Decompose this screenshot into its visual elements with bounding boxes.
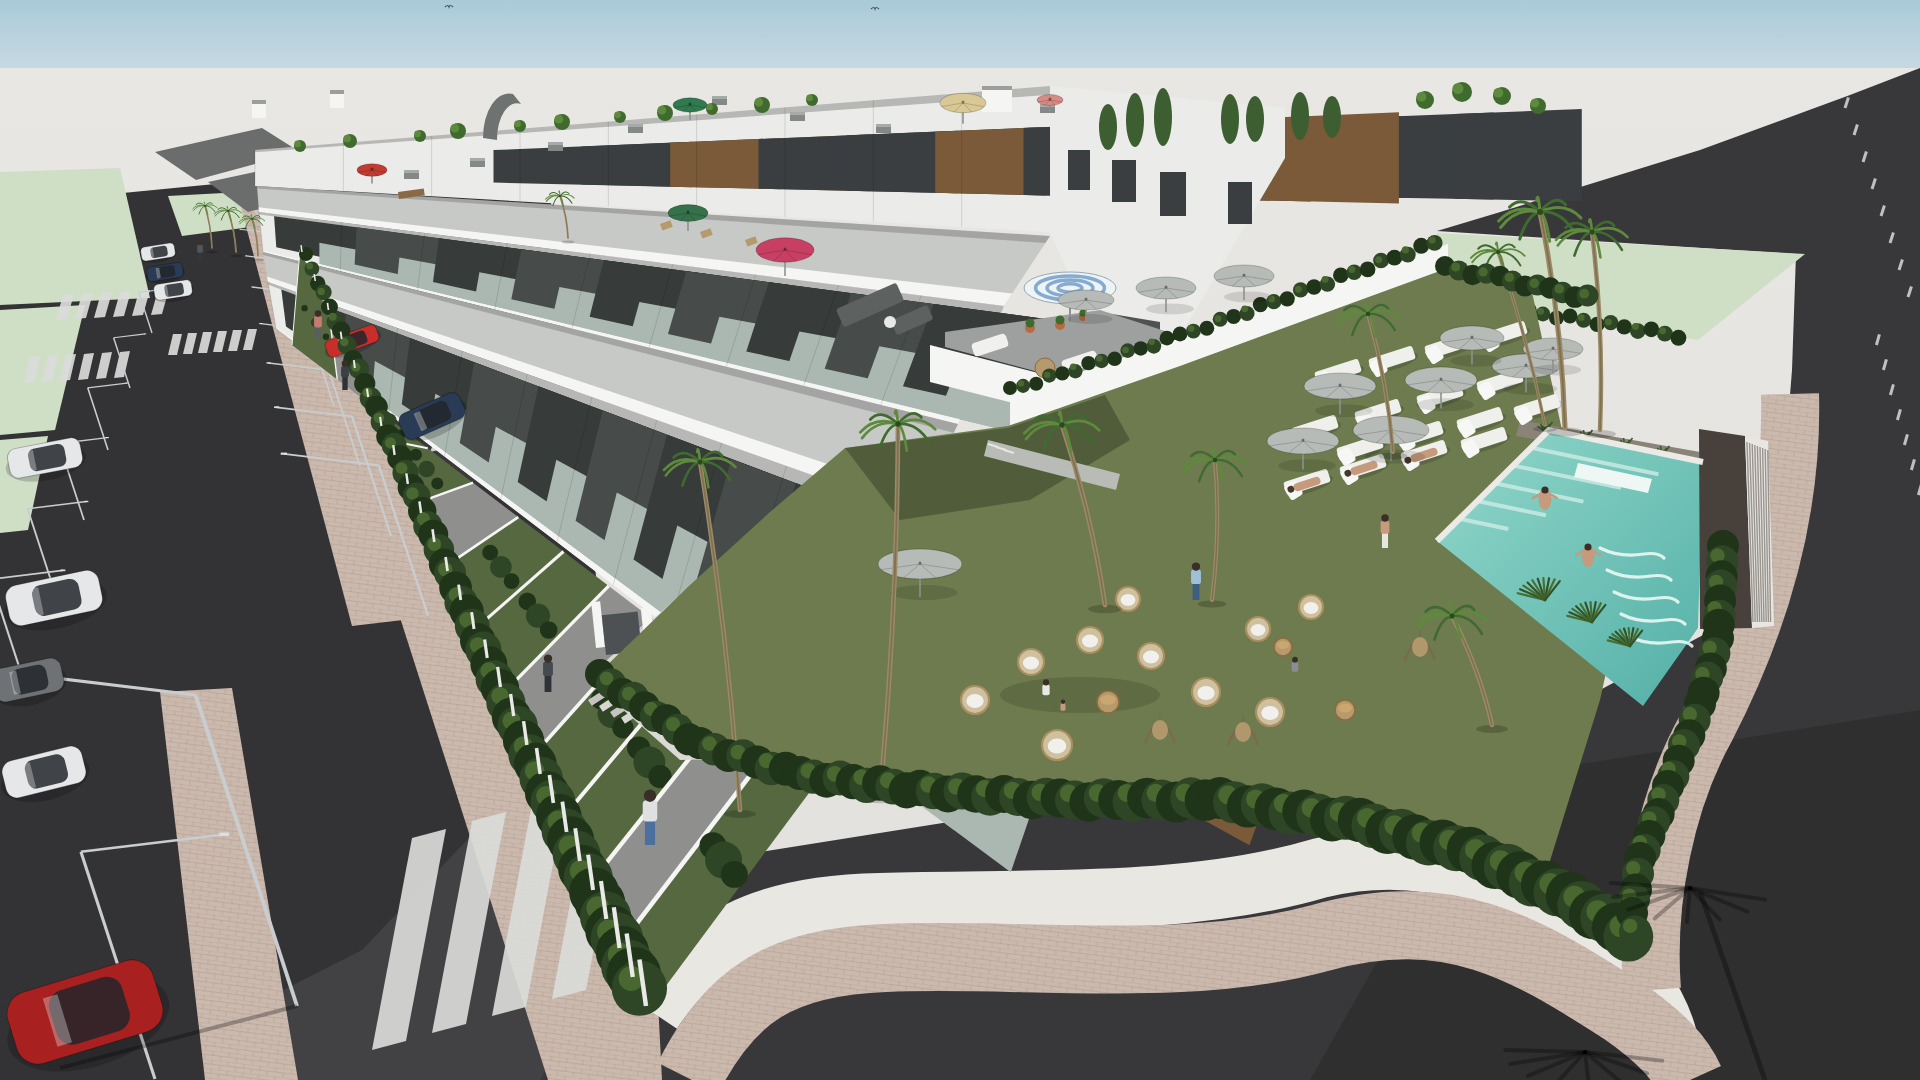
east-verge-hedge-hi bbox=[1537, 308, 1544, 315]
right-hedge-hi bbox=[1623, 919, 1637, 933]
roof-plant-hi bbox=[450, 124, 459, 133]
wall-top-hedge-hi bbox=[1429, 237, 1436, 244]
parasol-knob bbox=[1302, 439, 1305, 442]
roof-plant-hi bbox=[554, 115, 563, 124]
garden-visitor bbox=[1060, 700, 1065, 711]
wicker-egg-chair bbox=[1246, 617, 1270, 641]
sky bbox=[0, 0, 1920, 68]
palm-crown bbox=[1366, 312, 1371, 317]
lamp-head bbox=[251, 287, 254, 288]
egg-chair-cushion bbox=[1023, 657, 1039, 670]
wall-top-hedge bbox=[1055, 366, 1069, 380]
person-legs bbox=[198, 252, 202, 262]
chimney-cap bbox=[330, 90, 344, 94]
person-legs bbox=[645, 819, 655, 845]
lamp-head bbox=[144, 334, 146, 335]
wall-top-hedge bbox=[1081, 356, 1095, 370]
person-torso bbox=[341, 366, 349, 377]
wicker-egg-chair bbox=[1299, 595, 1323, 619]
wall-top-hedge-hi bbox=[1241, 305, 1248, 312]
palm-crown bbox=[895, 421, 900, 426]
parasol-knob bbox=[1243, 274, 1246, 277]
pool-back-hedge-hi bbox=[1505, 273, 1514, 282]
wall-top-hedge-hi bbox=[1188, 325, 1195, 332]
parasol-shadow bbox=[1533, 364, 1581, 375]
garden-visitor bbox=[1292, 657, 1299, 672]
end-block-window bbox=[1228, 182, 1252, 224]
east-verge-hedge bbox=[1590, 317, 1605, 332]
roof-cypress bbox=[1323, 96, 1341, 138]
ac-unit-top bbox=[876, 124, 891, 127]
ac-unit-top bbox=[628, 124, 643, 127]
roof-plant-hi bbox=[1416, 92, 1426, 102]
garden-hedge-blob bbox=[301, 305, 307, 311]
wicker-egg-chair bbox=[1192, 678, 1220, 706]
parasol-knob bbox=[1471, 336, 1474, 339]
lamp-head bbox=[239, 229, 241, 230]
east-verge-hedge-hi bbox=[1605, 319, 1612, 326]
wall-top-hedge-hi bbox=[1122, 347, 1129, 354]
lamp-head bbox=[219, 833, 229, 836]
roof-cypress bbox=[1221, 94, 1239, 144]
wall-top-hedge bbox=[1413, 238, 1429, 254]
east-verge-hedge bbox=[1576, 313, 1591, 328]
roof-cypress bbox=[1126, 93, 1144, 147]
pool-back-hedge-hi bbox=[1579, 289, 1589, 299]
east-verge-hedge bbox=[1617, 319, 1632, 334]
east-verge-hedge bbox=[1563, 309, 1578, 324]
roof-plant-hi bbox=[514, 121, 521, 128]
street-hedge-hi bbox=[318, 288, 325, 295]
person-legs bbox=[315, 326, 320, 340]
person-head bbox=[1192, 562, 1200, 570]
lamp-head bbox=[84, 501, 88, 502]
person-torso bbox=[1191, 570, 1201, 584]
person-legs bbox=[1382, 532, 1388, 548]
rattan-table-top bbox=[1338, 704, 1352, 713]
wall-top-hedge-hi bbox=[1215, 315, 1222, 322]
wall-top-hedge-hi bbox=[1375, 256, 1382, 263]
wicker-egg-chair bbox=[1042, 730, 1072, 760]
wall-top-hedge bbox=[1003, 381, 1017, 395]
person-torso bbox=[643, 800, 658, 821]
east-verge-hedge bbox=[1671, 330, 1687, 346]
person-head bbox=[1292, 657, 1298, 663]
ac-unit-top bbox=[470, 158, 485, 161]
person-torso bbox=[1381, 521, 1390, 534]
roof-plant-hi bbox=[294, 141, 301, 148]
east-verge-hedge bbox=[1644, 322, 1660, 338]
lamp-head bbox=[61, 569, 66, 571]
parasol-shadow bbox=[1450, 355, 1501, 367]
rendering-canvas bbox=[0, 0, 1920, 1080]
wall-top-hedge bbox=[1173, 327, 1188, 342]
wall-top-hedge bbox=[1094, 354, 1108, 368]
lamp-head bbox=[126, 383, 129, 384]
palm-crown bbox=[1449, 613, 1454, 618]
pot-plant bbox=[1026, 319, 1035, 328]
garden-hedge-blob bbox=[418, 461, 435, 478]
wall-top-hedge bbox=[1306, 279, 1321, 294]
parasol-knob bbox=[784, 248, 787, 251]
wall-top-hedge-hi bbox=[1402, 246, 1409, 253]
person-torso bbox=[1060, 703, 1065, 711]
egg-chair-cushion bbox=[1048, 739, 1067, 754]
swing-seat bbox=[1152, 720, 1168, 740]
wall-top-hedge-hi bbox=[1295, 286, 1302, 293]
roof-plant-hi bbox=[754, 98, 763, 107]
palm-shadow bbox=[230, 254, 242, 257]
egg-chair-cushion bbox=[1121, 594, 1136, 606]
swimmer-head bbox=[1584, 543, 1591, 550]
end-block-window bbox=[1112, 160, 1136, 202]
person-head bbox=[315, 310, 322, 317]
garden-hedge-blob bbox=[323, 334, 329, 340]
swing-seat bbox=[1412, 637, 1428, 657]
palm-frond-shadow bbox=[1505, 1050, 1585, 1052]
palm-shadow bbox=[562, 240, 575, 243]
garden-hedge-blob bbox=[431, 477, 443, 489]
palm-crown bbox=[697, 459, 702, 464]
right-hedge-hi bbox=[1626, 861, 1640, 875]
person-legs bbox=[342, 376, 347, 390]
pot-plant bbox=[1056, 316, 1065, 325]
parasol-shadow bbox=[1278, 459, 1336, 472]
person-head bbox=[1381, 514, 1388, 521]
pool-back-hedge-hi bbox=[1554, 284, 1564, 294]
wall-top-hedge bbox=[1029, 377, 1043, 391]
parasol-knob bbox=[1339, 384, 1342, 387]
wall-top-hedge bbox=[1160, 331, 1175, 346]
street-hedge bbox=[321, 299, 338, 316]
palm-shadow bbox=[207, 251, 218, 254]
wicker-egg-chair bbox=[1018, 649, 1044, 675]
street-hedge bbox=[305, 261, 320, 276]
wall-top-hedge bbox=[1133, 341, 1148, 356]
wall-top-hedge bbox=[1360, 262, 1376, 278]
palm-crown bbox=[204, 205, 206, 207]
palm-crown bbox=[251, 218, 253, 220]
palm-crown bbox=[559, 195, 561, 197]
person-torso bbox=[1292, 662, 1299, 672]
wall-top-hedge bbox=[1280, 291, 1295, 306]
person-torso bbox=[314, 316, 322, 327]
parasol-shadow bbox=[1416, 398, 1474, 411]
roof-cypress bbox=[1099, 104, 1117, 150]
palm-crown bbox=[1059, 422, 1064, 427]
wall-top-hedge bbox=[1427, 235, 1443, 251]
pool-back-hedge-hi bbox=[1530, 279, 1540, 289]
person-head bbox=[1061, 700, 1065, 704]
architectural-aerial-rendering bbox=[0, 0, 1920, 1080]
parasol-shadow bbox=[1503, 383, 1557, 395]
terrace-table bbox=[884, 316, 896, 328]
parasol-shadow bbox=[890, 585, 957, 600]
person-legs bbox=[545, 675, 552, 692]
chimney-cap bbox=[252, 100, 266, 104]
roof-plant-hi bbox=[806, 95, 813, 102]
parasol-shadow bbox=[1146, 303, 1194, 314]
egg-chair-cushion bbox=[1082, 635, 1098, 648]
ac-unit-top bbox=[548, 142, 563, 145]
parasol-knob bbox=[1085, 298, 1088, 301]
roof-plant-hi bbox=[1493, 88, 1503, 98]
wicker-egg-chair bbox=[1138, 643, 1164, 669]
person-head bbox=[342, 360, 349, 367]
egg-chair-cushion bbox=[1261, 706, 1278, 720]
wicker-egg-chair bbox=[1256, 698, 1284, 726]
wall-top-hedge bbox=[1016, 379, 1030, 393]
garden-hedge-blob bbox=[721, 861, 748, 888]
parasol-knob bbox=[689, 103, 692, 106]
roof-plant-hi bbox=[614, 112, 621, 119]
roof-plant-hi bbox=[343, 135, 351, 143]
street-hedge-hi bbox=[351, 363, 360, 372]
street-hedge-hi bbox=[396, 462, 408, 474]
person-head bbox=[1043, 679, 1049, 685]
roof-plant-hi bbox=[1530, 99, 1539, 108]
garden-hedge-blob bbox=[540, 621, 558, 639]
wall-top-hedge-hi bbox=[1096, 355, 1102, 361]
parasol-knob bbox=[962, 101, 965, 104]
parasol-shadow bbox=[1315, 404, 1373, 417]
wall-top-hedge-hi bbox=[1148, 338, 1155, 345]
person-head bbox=[198, 240, 203, 245]
palm-shadow bbox=[1533, 426, 1557, 432]
wall-top-hedge bbox=[1107, 352, 1121, 366]
east-verge-hedge bbox=[1657, 326, 1673, 342]
right-hedge bbox=[1619, 916, 1651, 948]
wall-top-hedge-hi bbox=[1018, 380, 1024, 386]
wicker-egg-chair bbox=[961, 686, 989, 714]
ac-unit-top bbox=[712, 96, 727, 99]
window bbox=[1455, 109, 1582, 201]
roof-plant-hi bbox=[1453, 83, 1464, 94]
person-legs bbox=[1193, 583, 1200, 600]
roof-plant-hi bbox=[414, 131, 421, 138]
street-hedge-hi bbox=[306, 263, 313, 270]
palm-crown bbox=[1496, 250, 1500, 254]
lamp-head bbox=[259, 323, 262, 324]
wall-top-hedge-hi bbox=[1348, 266, 1355, 273]
east-verge-hedge-hi bbox=[1659, 327, 1666, 334]
palm-crown bbox=[1537, 209, 1543, 215]
person-torso bbox=[1042, 684, 1049, 695]
wall-top-hedge bbox=[1333, 267, 1349, 283]
wall-top-hedge-hi bbox=[1044, 372, 1050, 378]
garden-visitor bbox=[1042, 679, 1049, 695]
roof-plant-hi bbox=[657, 106, 666, 115]
lamp-head bbox=[274, 406, 279, 408]
parasol-knob bbox=[1440, 378, 1443, 381]
parasol-knob bbox=[1525, 364, 1528, 367]
wall-top-hedge-hi bbox=[1070, 364, 1076, 370]
street-hedge-hi bbox=[406, 487, 418, 499]
lamp-head bbox=[266, 362, 270, 363]
lamp-head bbox=[281, 453, 287, 455]
parasol-knob bbox=[1552, 347, 1555, 350]
egg-chair-cushion bbox=[1251, 624, 1266, 636]
person-head bbox=[544, 654, 552, 662]
egg-chair-cushion bbox=[1197, 686, 1214, 700]
street-hedge-hi bbox=[329, 313, 337, 321]
parasol-knob bbox=[1049, 98, 1052, 101]
palm-crown bbox=[1213, 458, 1218, 463]
pool-back-hedge-hi bbox=[1479, 267, 1488, 276]
parasol-knob bbox=[687, 211, 690, 214]
parasol-shadow bbox=[1224, 291, 1272, 302]
roof-cypress bbox=[1154, 88, 1172, 146]
egg-chair-cushion bbox=[1304, 602, 1319, 614]
pool-back-hedge-hi bbox=[1451, 262, 1460, 271]
rattan-table-top bbox=[1277, 641, 1290, 649]
end-block-window bbox=[1160, 172, 1186, 216]
seating-shadow bbox=[1000, 677, 1160, 713]
wall-top-hedge bbox=[1186, 324, 1201, 339]
roof-cypress bbox=[1246, 96, 1264, 142]
parasol-knob bbox=[1165, 286, 1168, 289]
east-verge-hedge-hi bbox=[1632, 323, 1639, 330]
swimmer-head bbox=[1541, 486, 1548, 493]
palm-crown bbox=[1589, 229, 1594, 234]
lamp-head bbox=[245, 256, 247, 257]
rattan-table-top bbox=[1100, 695, 1115, 705]
end-block-window bbox=[1068, 150, 1090, 190]
street-hedge-hi bbox=[374, 412, 385, 423]
wall-top-hedge bbox=[1226, 309, 1241, 324]
egg-chair-cushion bbox=[1143, 651, 1159, 664]
parasol-knob bbox=[919, 562, 922, 565]
east-verge-hedge-hi bbox=[1578, 314, 1585, 321]
roof-cypress bbox=[1291, 92, 1309, 140]
wicker-egg-chair bbox=[1077, 627, 1103, 653]
wall-top-hedge bbox=[1199, 321, 1214, 336]
garden-hedge-blob bbox=[504, 573, 520, 589]
person-torso bbox=[543, 662, 553, 676]
lamp-head bbox=[106, 437, 109, 438]
person-torso bbox=[197, 244, 203, 252]
palm-shadow bbox=[252, 259, 264, 262]
wall-top-hedge bbox=[1387, 250, 1403, 266]
parasol-shadow bbox=[1068, 314, 1113, 324]
egg-chair-cushion bbox=[966, 694, 983, 708]
palm-crown bbox=[227, 210, 229, 212]
chimney-cap bbox=[982, 86, 1012, 90]
person-head bbox=[644, 790, 656, 802]
wall-top-hedge-hi bbox=[1322, 276, 1329, 283]
swing-seat bbox=[1235, 722, 1251, 742]
ac-unit-top bbox=[790, 112, 805, 115]
wall-top-hedge bbox=[1346, 265, 1362, 281]
ac-unit-top bbox=[404, 170, 419, 173]
right-hedge-hi bbox=[1683, 707, 1697, 721]
parasol-knob bbox=[371, 168, 374, 171]
